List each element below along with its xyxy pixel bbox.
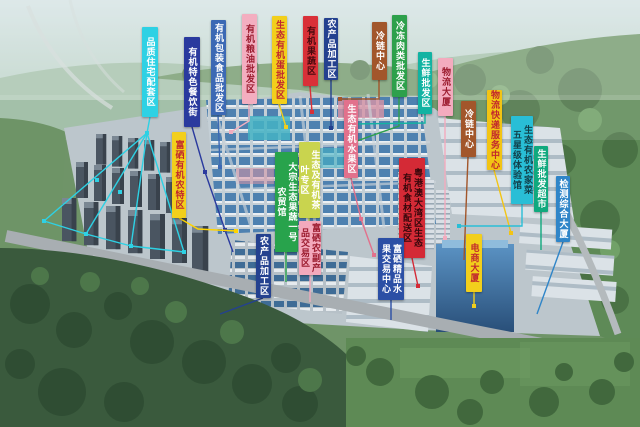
zone-label-dianshang-dasha: 电商大厦 [466, 234, 482, 292]
zone-label-shengxian-pifa-qu: 生鲜批发区 [418, 52, 432, 114]
zone-label-chaye-zhuanqu: 生态及有机茶 叶专区 [299, 142, 320, 218]
zone-label-lenglian-zhongxin-2: 冷链中心 [461, 101, 476, 157]
zone-label-baozhuang-shipin: 有机包装食品批发区 [211, 20, 226, 115]
zone-label-canyin-jie: 有机特色餐饮街 [184, 37, 200, 127]
zone-label-youji-shuiguo-qu: 生态有机水果区 [344, 100, 358, 178]
zone-label-lenglian-zhongxin-1: 冷链中心 [372, 22, 387, 80]
zone-label-dazong-nongmaoguan: 大宗生态果蔬一号 农贸馆 [275, 152, 298, 252]
aerial-site-plan: 品质住宅配套区有机特色餐饮街有机包装食品批发区有机粮油批发区生态有机蛋批发区有机… [0, 0, 640, 427]
zone-label-shengxian-chaoshi: 生鲜批发超市 [534, 146, 548, 212]
zone-label-guoshu-qu: 有机果蔬区 [303, 16, 318, 86]
zone-label-nongchanpin-jiagong-nan: 农产品加工区 [256, 234, 271, 298]
zone-label-wuliu-kuaidi-fuwu: 物流快递服务中心 [487, 90, 502, 170]
zone-label-jiance-dasha: 检测综合大厦 [556, 176, 570, 242]
zone-label-fuxi-jiaoyi-qu: 富硒农副产 品交易区 [299, 221, 321, 275]
zone-label-liangyou-pifa: 有机粮油批发区 [242, 14, 257, 104]
zone-label-lengdong-roulei: 冷冻肉类批发区 [392, 15, 407, 97]
zone-label-fuxi-nongte-qu: 富硒有机农特区 [172, 132, 186, 218]
zone-label-wuliu-dasha: 物流大厦 [438, 58, 453, 116]
annotation-layer: 品质住宅配套区有机特色餐饮街有机包装食品批发区有机粮油批发区生态有机蛋批发区有机… [0, 0, 640, 427]
zone-label-nongjiacai-tiyanguan: 生态有机农家菜 五星级体验馆 [511, 116, 533, 204]
zone-label-pinzhi-zhuzhai: 品质住宅配套区 [142, 27, 158, 117]
zone-label-nongchanpin-jiagong-bei: 农产品加工区 [324, 18, 338, 80]
zone-label-dan-pifa: 生态有机蛋批发区 [272, 16, 287, 104]
zone-label-jingpin-shuiguo-jiaoyi: 富硒精品水 果交易中心 [378, 238, 404, 300]
